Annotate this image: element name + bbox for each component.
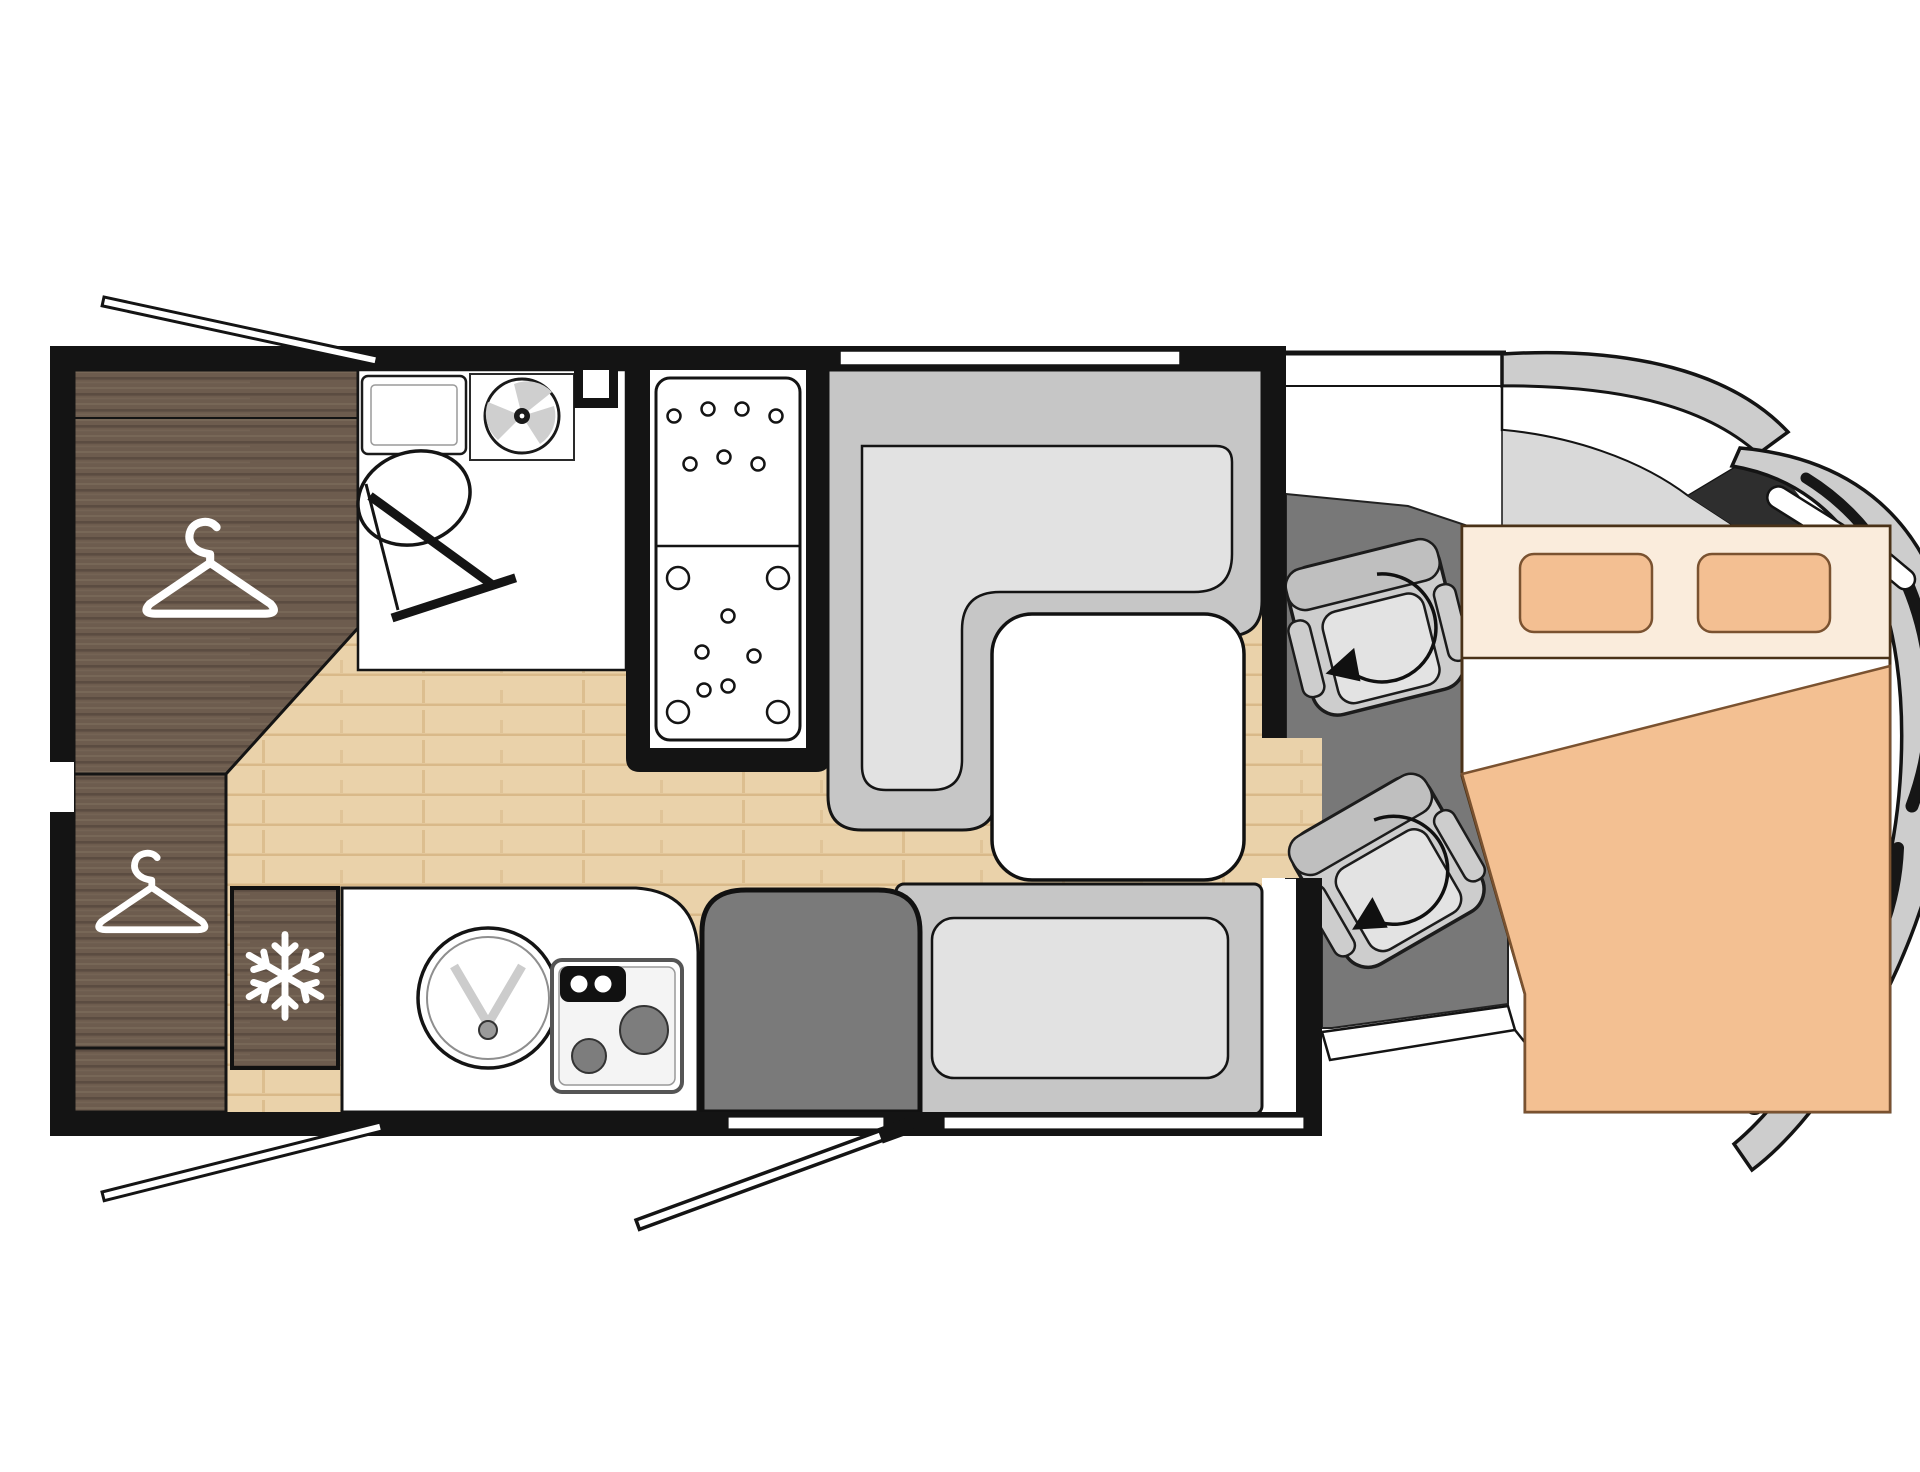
kitchen-sink bbox=[418, 928, 558, 1068]
hob-controls bbox=[560, 966, 626, 1002]
corner-washbasin bbox=[362, 376, 466, 454]
dinette bbox=[828, 370, 1262, 880]
faucet bbox=[479, 1021, 497, 1039]
window-strip-bench bbox=[944, 1117, 1304, 1129]
wardrobe-lower bbox=[74, 774, 226, 1048]
window-strip-step bbox=[728, 1117, 884, 1129]
side-bench-cushion bbox=[932, 918, 1228, 1078]
pillow-right bbox=[1698, 554, 1830, 632]
hob bbox=[552, 960, 682, 1092]
drawer-cabinet bbox=[74, 1048, 226, 1112]
kitchen bbox=[342, 888, 698, 1112]
right-wall-lower bbox=[1296, 878, 1322, 1136]
fridge-freezer bbox=[232, 888, 338, 1068]
roof-band bbox=[1286, 353, 1506, 495]
window-strip-top bbox=[840, 351, 1180, 365]
roof-fan-icon bbox=[470, 374, 574, 460]
shower-door-latch bbox=[574, 370, 618, 408]
burner-small bbox=[572, 1039, 606, 1073]
pillow-left bbox=[1520, 554, 1652, 632]
side-bench bbox=[896, 884, 1262, 1114]
right-wall-upper bbox=[1262, 346, 1286, 738]
left-wall-vent bbox=[50, 762, 74, 812]
left-wall bbox=[50, 346, 74, 1136]
bathroom bbox=[346, 370, 626, 670]
entry-step bbox=[702, 890, 920, 1112]
burner-large bbox=[620, 1006, 668, 1054]
motorhome-floor-plan bbox=[40, 16, 1920, 1456]
front-bed bbox=[1462, 526, 1890, 1112]
dinette-table bbox=[992, 614, 1244, 880]
